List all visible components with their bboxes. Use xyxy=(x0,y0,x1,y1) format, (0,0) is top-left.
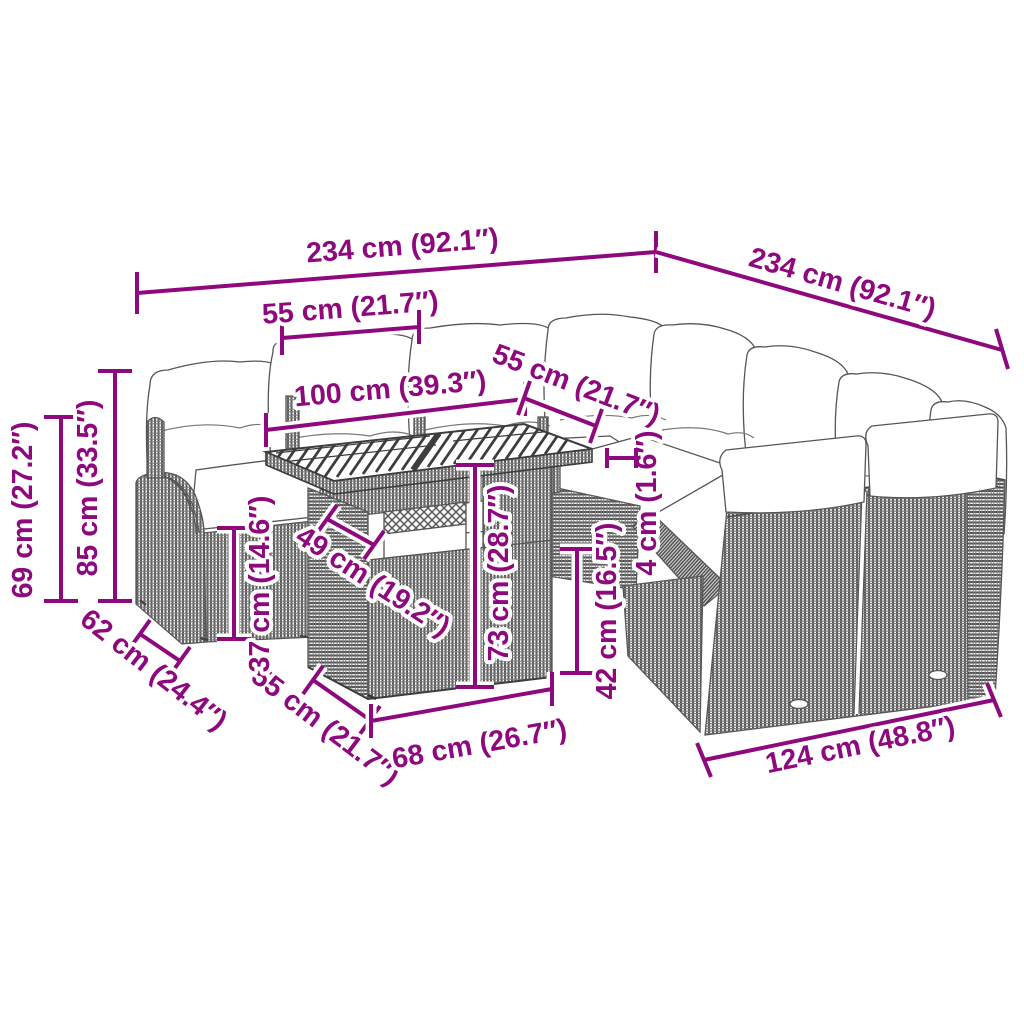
svg-text:37 cm (14.6″): 37 cm (14.6″) xyxy=(244,496,276,673)
svg-text:69 cm (27.2″): 69 cm (27.2″) xyxy=(7,422,39,599)
svg-text:42 cm (16.5″): 42 cm (16.5″) xyxy=(591,523,623,700)
svg-text:85 cm (33.5″): 85 cm (33.5″) xyxy=(72,400,104,577)
svg-text:73 cm (28.7″): 73 cm (28.7″) xyxy=(483,485,515,662)
